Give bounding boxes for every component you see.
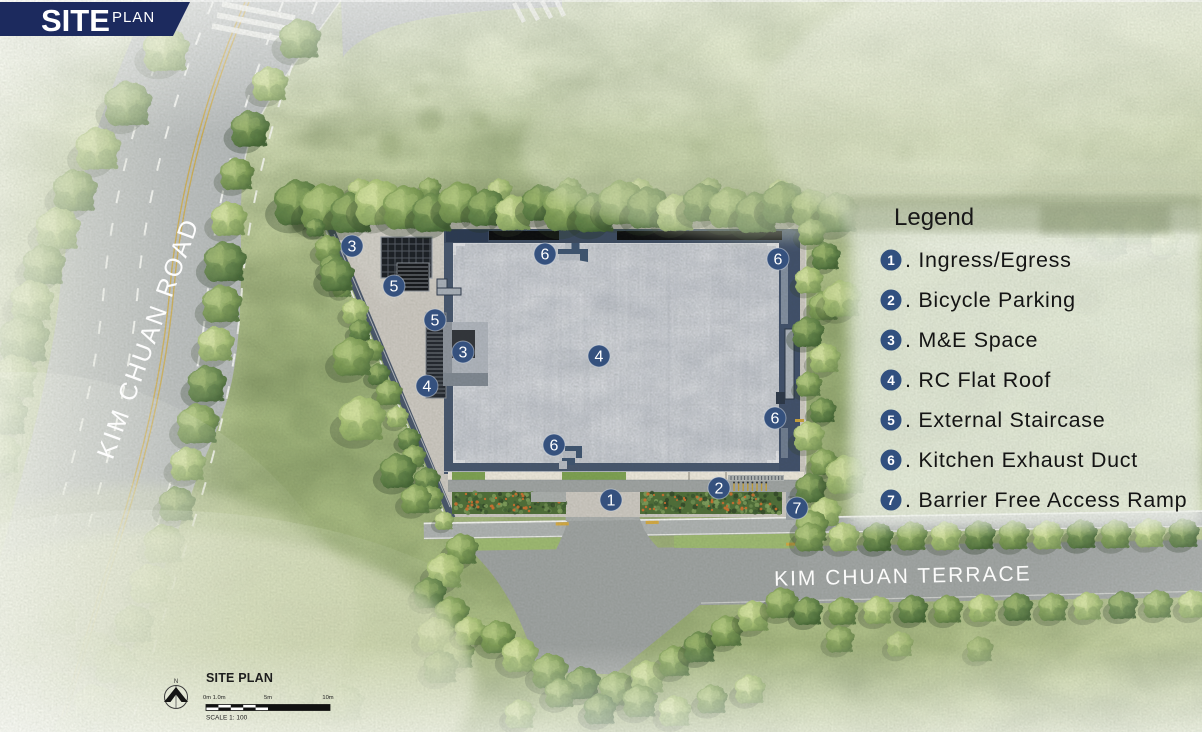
svg-text:5m: 5m <box>264 695 272 701</box>
svg-text:10m: 10m <box>322 695 333 701</box>
svg-text:1: 1 <box>887 253 895 268</box>
svg-text:6: 6 <box>550 438 559 455</box>
svg-text:PLAN: PLAN <box>112 9 155 26</box>
svg-text:3: 3 <box>887 333 895 348</box>
svg-text:. Bicycle Parking: . Bicycle Parking <box>905 288 1076 312</box>
svg-text:. RC Flat Roof: . RC Flat Roof <box>905 368 1051 392</box>
svg-text:2: 2 <box>887 293 895 308</box>
svg-text:7: 7 <box>793 501 802 518</box>
svg-text:SITE: SITE <box>41 3 110 38</box>
svg-text:3: 3 <box>459 345 468 362</box>
svg-text:3: 3 <box>348 239 357 256</box>
svg-text:4: 4 <box>423 379 432 396</box>
svg-text:1: 1 <box>607 493 616 510</box>
svg-text:. Kitchen Exhaust Duct: . Kitchen Exhaust Duct <box>905 448 1138 472</box>
svg-text:N: N <box>174 679 178 685</box>
svg-text:4: 4 <box>887 373 895 388</box>
svg-text:5: 5 <box>390 279 399 296</box>
svg-text:. Barrier Free Access Ramp: . Barrier Free Access Ramp <box>905 488 1187 512</box>
svg-text:5: 5 <box>431 313 440 330</box>
svg-text:4: 4 <box>595 349 604 366</box>
svg-text:SCALE 1: 100: SCALE 1: 100 <box>206 715 248 722</box>
svg-text:. External Staircase: . External Staircase <box>905 408 1105 432</box>
svg-text:0m 1.0m: 0m 1.0m <box>203 695 226 701</box>
svg-text:2: 2 <box>715 481 724 498</box>
svg-text:6: 6 <box>771 411 780 428</box>
svg-text:6: 6 <box>774 252 783 269</box>
svg-text:SITE PLAN: SITE PLAN <box>206 671 273 685</box>
svg-text:6: 6 <box>887 453 895 468</box>
svg-text:. Ingress/Egress: . Ingress/Egress <box>905 248 1072 272</box>
svg-text:7: 7 <box>887 493 895 508</box>
svg-text:Legend: Legend <box>894 204 974 231</box>
svg-text:5: 5 <box>887 413 895 428</box>
svg-text:6: 6 <box>541 247 550 264</box>
svg-text:. M&E Space: . M&E Space <box>905 328 1038 352</box>
